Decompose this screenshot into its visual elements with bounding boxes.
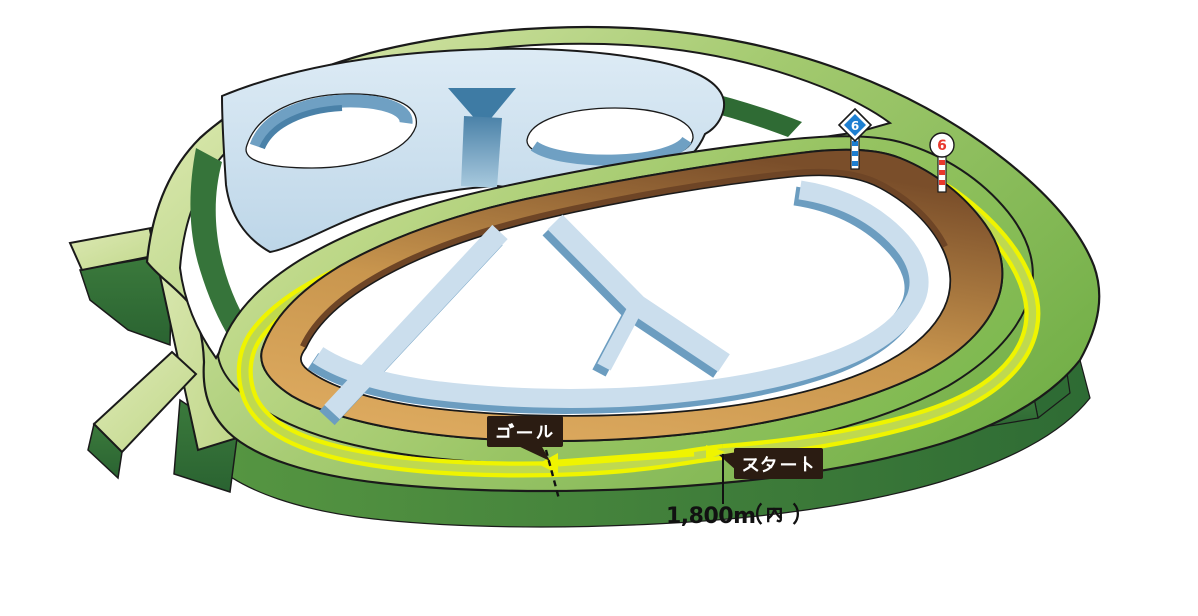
racecourse-map: ゴール スタート 1,800m（内） bbox=[0, 0, 1198, 616]
start-label bbox=[719, 448, 823, 479]
distance-latin-text: 1,800m bbox=[666, 504, 756, 529]
course-diagram: 6 6 bbox=[0, 0, 1198, 616]
diamond-marker-value: 6 bbox=[851, 119, 859, 133]
distance-label: 1,800m bbox=[666, 504, 798, 529]
circle-marker-value: 6 bbox=[937, 138, 947, 154]
